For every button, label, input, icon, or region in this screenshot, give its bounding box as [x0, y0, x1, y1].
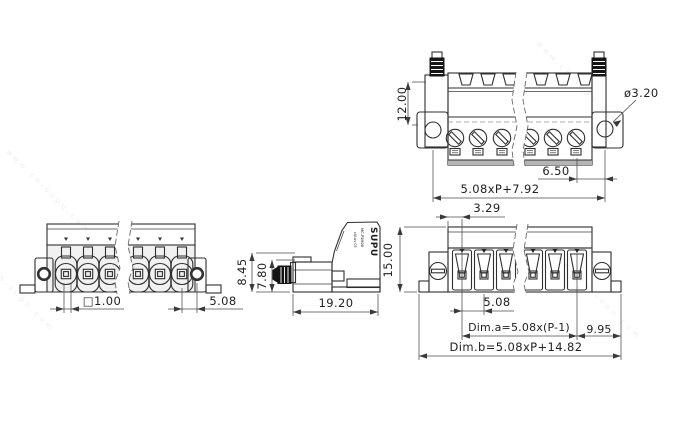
wire-screw	[469, 129, 486, 146]
brand-logo: SUPU	[368, 227, 378, 257]
terminal-pocket	[497, 249, 516, 290]
flange-screw	[594, 263, 611, 280]
dim-text: 15.00	[381, 243, 395, 278]
plug-body	[293, 262, 332, 292]
wire-screw	[446, 129, 463, 146]
dim-text: 6.50	[542, 164, 569, 178]
dim-pole-to-hole: 6.50	[538, 150, 617, 202]
screw-tip	[273, 267, 279, 284]
mounting-hole	[425, 122, 441, 138]
panel-screw	[592, 52, 606, 76]
socket-front-view	[417, 52, 623, 166]
mounting-hole	[38, 268, 50, 280]
dim-pole-to-edge: 9.95	[577, 294, 621, 360]
dim-text: 12.00	[395, 87, 409, 122]
brand-cert: cULus CE	[353, 232, 357, 248]
dim-text: 5.08	[483, 295, 510, 309]
wire-screw	[567, 129, 584, 146]
dim-pitch: 5.08	[450, 294, 514, 315]
dim-hole-diameter: ø3.20	[613, 86, 659, 127]
watermark-text: www.cn-supu.com	[5, 148, 93, 236]
side-view: SUPU MC-P5M08 cULus CE	[273, 222, 381, 292]
dim-height-to-hole: 12.00	[395, 82, 426, 125]
dim-depth: 19.20	[293, 294, 378, 316]
dim-text: 3.29	[473, 201, 500, 215]
dim-text: 5.08xP+7.92	[461, 182, 540, 196]
dim-text: Dim.b=5.08xP+14.82	[450, 340, 583, 354]
watermark-text: www.cn-supu.com	[535, 40, 623, 128]
wire-screw	[493, 129, 510, 146]
dim-text: 5.08	[209, 294, 236, 308]
dim-plug-height: 15.00	[381, 227, 446, 292]
flange-screw	[430, 263, 447, 280]
dim-text: 19.20	[319, 296, 354, 310]
dim-text: 9.95	[586, 323, 611, 336]
mounting-hole	[191, 268, 203, 280]
technical-drawing: www.cn-supu.com www.cn-supu.com www.cn-s…	[0, 0, 680, 440]
mounting-hole	[597, 121, 613, 137]
drawing-canvas: www.cn-supu.com www.cn-supu.com www.cn-s…	[0, 0, 680, 440]
dim-text: □1.00	[83, 294, 121, 308]
dim-text: 8.45	[235, 258, 249, 285]
brand-model: MC-P5M08	[360, 228, 364, 248]
wire-screw	[544, 129, 561, 146]
panel-screw	[430, 52, 444, 76]
dim-text: ø3.20	[624, 86, 659, 100]
dim-text: Dim.a=5.08x(P-1)	[468, 321, 570, 334]
header-front-view	[20, 221, 221, 294]
dim-text: 7.80	[255, 262, 269, 289]
terminal-pocket	[546, 249, 565, 290]
terminal-pocket	[475, 249, 494, 290]
